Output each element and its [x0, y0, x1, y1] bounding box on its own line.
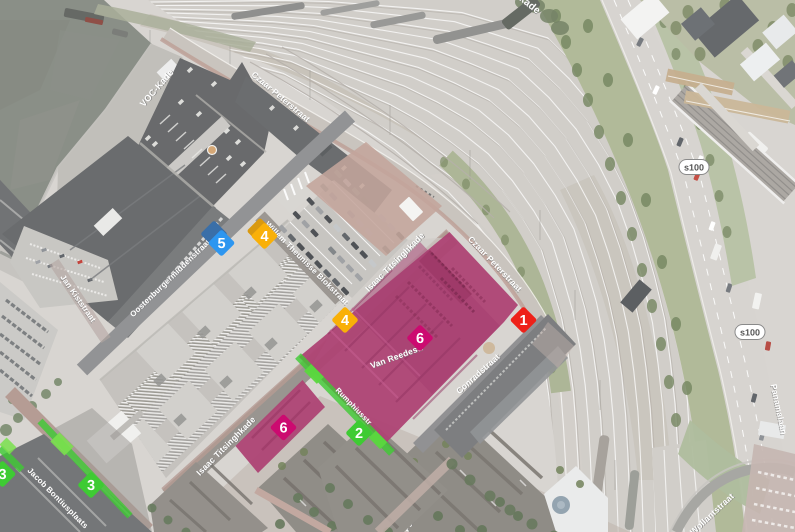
svg-text:5: 5	[217, 236, 225, 252]
svg-text:3: 3	[0, 467, 7, 483]
svg-text:6: 6	[279, 421, 287, 437]
svg-text:4: 4	[341, 313, 349, 329]
svg-text:4: 4	[260, 229, 268, 245]
svg-text:s100: s100	[740, 328, 760, 338]
svg-text:2: 2	[355, 426, 363, 442]
svg-text:6: 6	[416, 331, 424, 347]
svg-text:s100: s100	[684, 163, 704, 173]
svg-text:1: 1	[519, 313, 527, 329]
svg-text:3: 3	[87, 478, 95, 494]
